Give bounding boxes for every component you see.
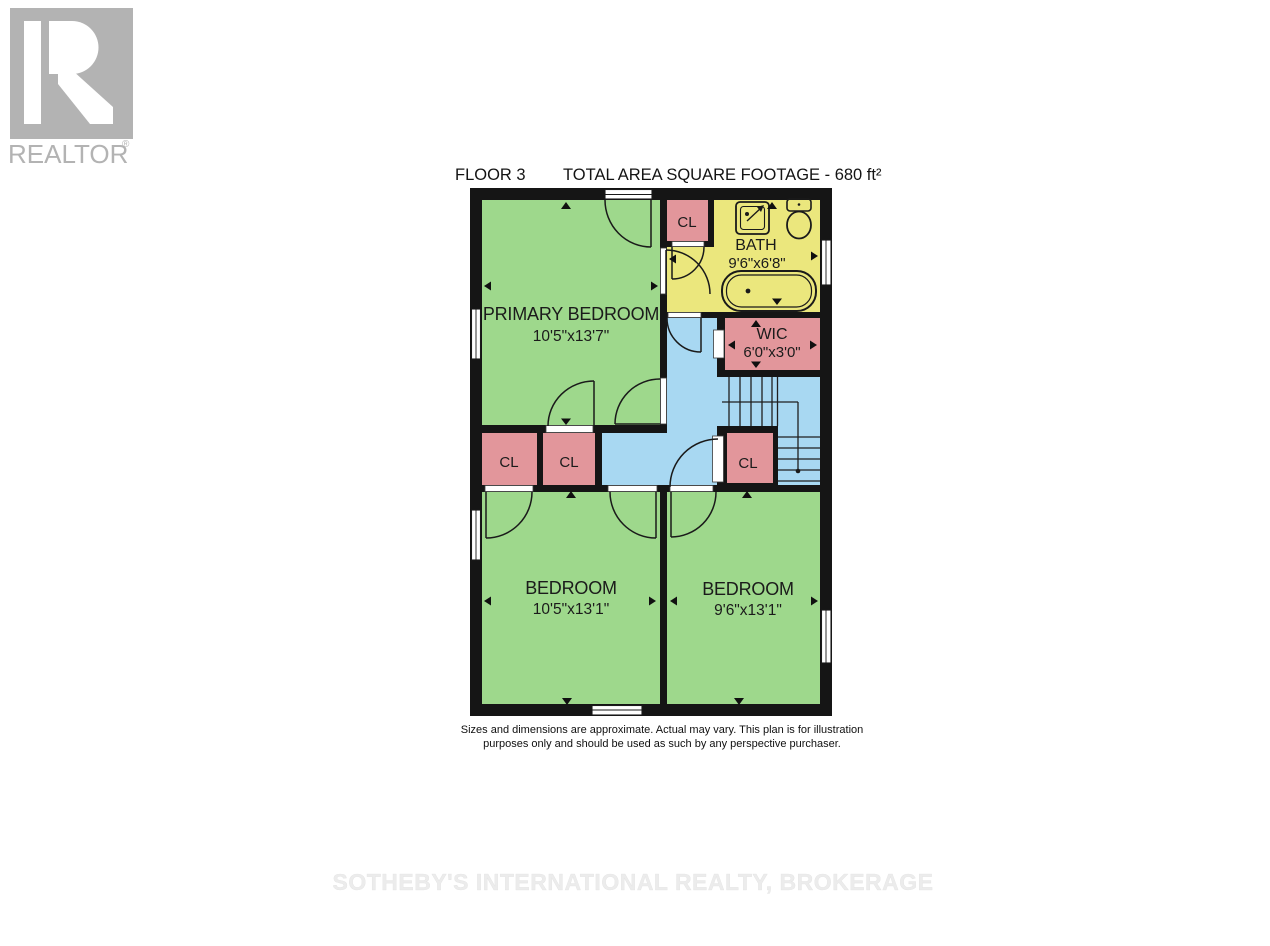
disclaimer-line-1: Sizes and dimensions are approximate. Ac… bbox=[461, 724, 864, 736]
closet-top-label: CL bbox=[677, 214, 696, 231]
bedroom-left-door-opening bbox=[608, 486, 657, 492]
brokerage-watermark: SOTHEBY'S INTERNATIONAL REALTY, BROKERAG… bbox=[332, 869, 933, 895]
wic-dims: 6'0"x3'0" bbox=[743, 344, 800, 361]
bedroom-right-dims: 9'6"x13'1" bbox=[714, 602, 782, 619]
floor-title: FLOOR 3 TOTAL AREA SQUARE FOOTAGE - 680 … bbox=[455, 166, 882, 184]
closet-left-b-door-opening bbox=[546, 426, 593, 433]
disclaimer-line-2: purposes only and should be used as such… bbox=[483, 738, 841, 750]
closet-right-label: CL bbox=[738, 455, 757, 472]
bath-dims: 9'6"x6'8" bbox=[728, 255, 785, 272]
stairs-lower-area bbox=[778, 426, 820, 485]
floor-label: FLOOR 3 bbox=[455, 166, 526, 184]
logo-wordmark: REALTOR bbox=[8, 139, 128, 169]
floor-plan: CL BATH 9'6"x6'8" PRIMARY BEDROOM 10'5"x… bbox=[470, 188, 832, 716]
wic-door-opening bbox=[714, 330, 725, 358]
closet-left-a-door-opening bbox=[485, 486, 533, 492]
floor-plan-page: REALTOR ® FLOOR 3 TOTAL AREA SQUARE FOOT… bbox=[0, 0, 1270, 941]
closet-right-door-opening bbox=[713, 436, 724, 482]
hallway-area bbox=[667, 318, 717, 485]
area-label: TOTAL AREA SQUARE FOOTAGE - 680 ft² bbox=[563, 166, 882, 184]
bedroom-right-door-opening bbox=[670, 486, 713, 492]
hallway-lower-area bbox=[602, 433, 667, 485]
bedroom-left-area bbox=[482, 492, 660, 704]
bedroom-left-dims: 10'5"x13'1" bbox=[533, 601, 609, 618]
bath-hall-door-opening bbox=[668, 313, 701, 318]
bedroom-right-label: BEDROOM bbox=[702, 579, 794, 599]
wic-label: WIC bbox=[756, 326, 787, 343]
realtor-logo: REALTOR ® bbox=[8, 8, 133, 169]
primary-bedroom-dims: 10'5"x13'7" bbox=[533, 328, 609, 345]
primary-bedroom-label: PRIMARY BEDROOM bbox=[483, 304, 659, 324]
logo-registered-mark: ® bbox=[122, 139, 130, 150]
closet-left-a-label: CL bbox=[499, 454, 518, 471]
disclaimer: Sizes and dimensions are approximate. Ac… bbox=[461, 724, 864, 750]
bath-label: BATH bbox=[735, 237, 776, 254]
primary-bedroom-door-opening bbox=[661, 378, 667, 424]
closet-top-door-opening bbox=[672, 242, 704, 247]
closet-left-b-label: CL bbox=[559, 454, 578, 471]
bedroom-left-label: BEDROOM bbox=[525, 578, 617, 598]
